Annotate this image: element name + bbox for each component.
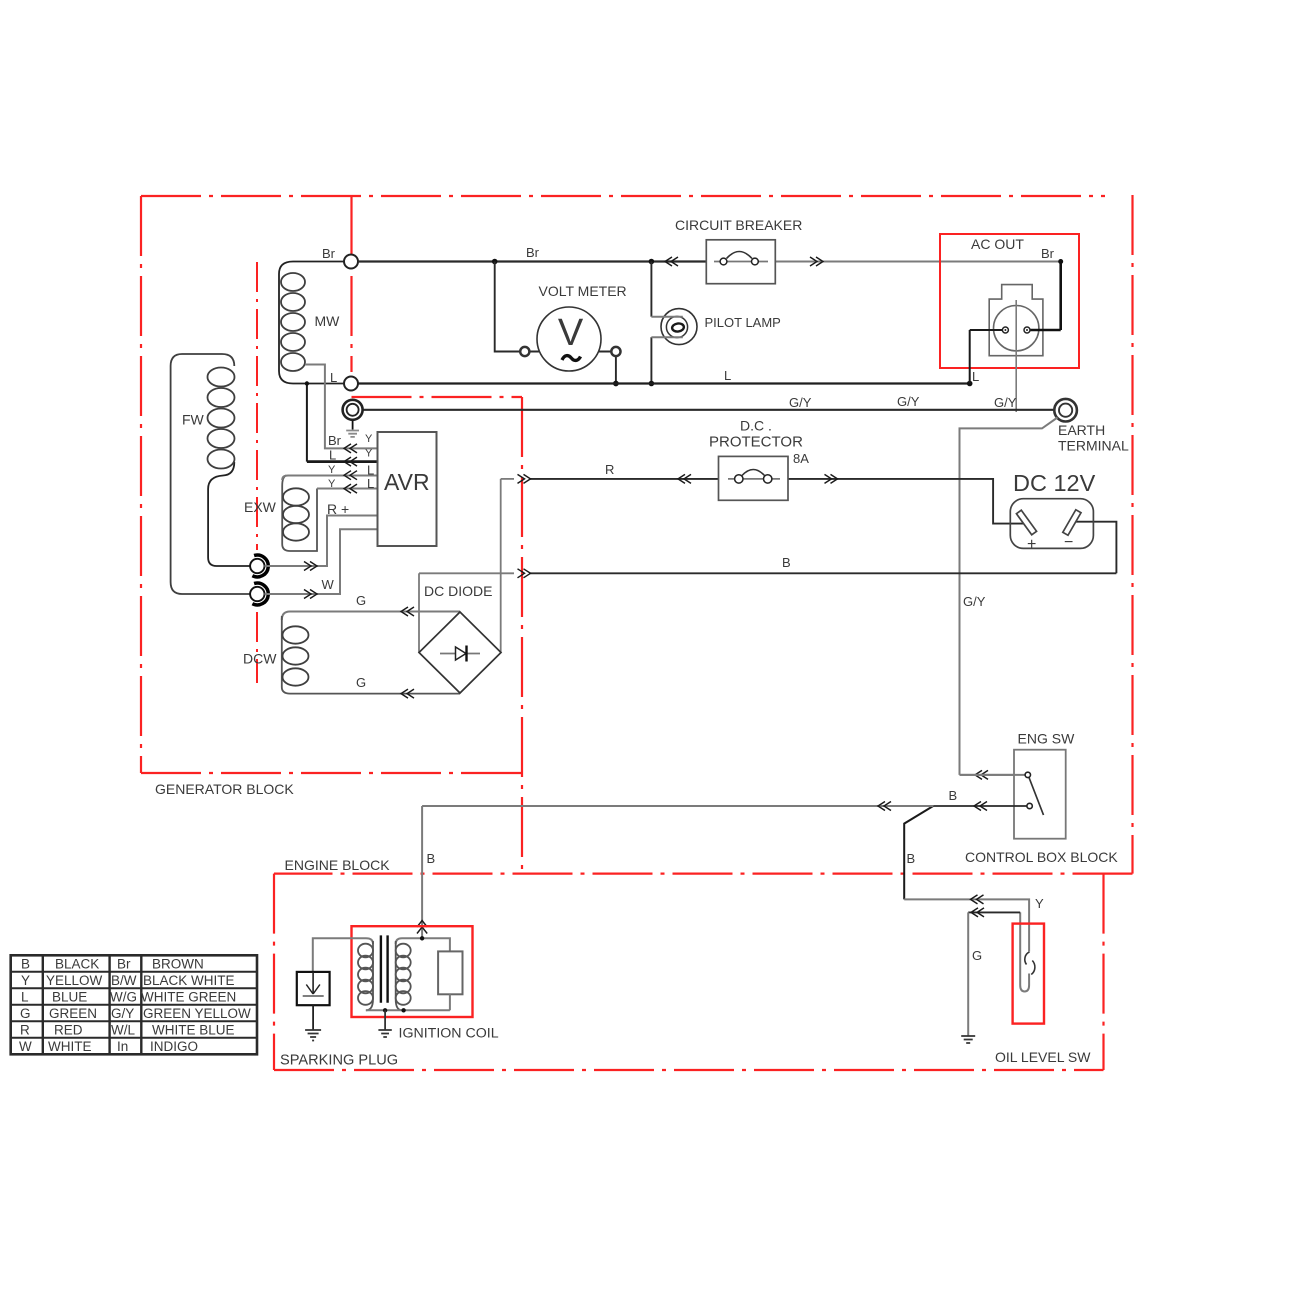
svg-text:SPARKING PLUG: SPARKING PLUG bbox=[280, 1053, 398, 1069]
svg-text:YELLOW: YELLOW bbox=[46, 973, 103, 988]
svg-text:Y: Y bbox=[21, 973, 30, 988]
svg-text:Br: Br bbox=[526, 245, 540, 260]
svg-text:DCW: DCW bbox=[243, 651, 277, 667]
svg-text:AC OUT: AC OUT bbox=[971, 236, 1024, 252]
svg-text:Y: Y bbox=[365, 433, 373, 445]
svg-text:MW: MW bbox=[315, 313, 341, 329]
svg-text:B: B bbox=[21, 957, 30, 972]
svg-text:Y: Y bbox=[1035, 896, 1044, 911]
svg-text:L: L bbox=[724, 368, 731, 383]
svg-text:G/Y: G/Y bbox=[963, 594, 986, 609]
svg-text:Y: Y bbox=[365, 448, 373, 460]
svg-text:G: G bbox=[972, 948, 982, 963]
svg-text:In: In bbox=[117, 1039, 128, 1054]
svg-text:Br: Br bbox=[328, 433, 342, 448]
svg-text:8A: 8A bbox=[793, 451, 809, 466]
svg-text:INDIGO: INDIGO bbox=[150, 1039, 198, 1054]
svg-text:B: B bbox=[949, 788, 958, 803]
svg-text:R: R bbox=[605, 462, 614, 477]
svg-text:GREEN: GREEN bbox=[49, 1006, 97, 1021]
svg-text:WHITE: WHITE bbox=[48, 1039, 92, 1054]
svg-text:Br: Br bbox=[322, 246, 336, 261]
svg-text:IGNITION COIL: IGNITION COIL bbox=[399, 1026, 499, 1042]
svg-text:B: B bbox=[907, 851, 916, 866]
svg-text:V: V bbox=[558, 312, 584, 354]
svg-text:DC DIODE: DC DIODE bbox=[424, 583, 492, 599]
svg-text:AVR: AVR bbox=[384, 469, 430, 495]
svg-text:BLACK: BLACK bbox=[55, 957, 99, 972]
svg-text:ENG SW: ENG SW bbox=[1018, 731, 1076, 747]
svg-text:B/W: B/W bbox=[111, 973, 137, 988]
svg-text:L: L bbox=[972, 369, 979, 384]
svg-text:G: G bbox=[356, 593, 366, 608]
svg-text:G/Y: G/Y bbox=[789, 395, 812, 410]
svg-text:EXW: EXW bbox=[244, 499, 277, 515]
svg-text:GREEN YELLOW: GREEN YELLOW bbox=[143, 1006, 251, 1021]
svg-text:WHITE GREEN: WHITE GREEN bbox=[141, 990, 236, 1005]
svg-text:GENERATOR BLOCK: GENERATOR BLOCK bbox=[155, 781, 294, 797]
svg-text:FW: FW bbox=[182, 412, 205, 428]
svg-text:G/Y: G/Y bbox=[111, 1006, 134, 1021]
svg-text:OIL LEVEL SW: OIL LEVEL SW bbox=[995, 1049, 1091, 1065]
svg-text:EARTH: EARTH bbox=[1058, 422, 1105, 438]
svg-text:+: + bbox=[1027, 536, 1036, 553]
svg-text:−: − bbox=[1064, 534, 1073, 551]
svg-text:Br: Br bbox=[1041, 246, 1055, 261]
svg-text:L: L bbox=[330, 370, 337, 385]
svg-text:RED: RED bbox=[54, 1023, 83, 1038]
svg-text:R: R bbox=[20, 1023, 30, 1038]
svg-text:L: L bbox=[329, 448, 336, 463]
svg-text:CIRCUIT BREAKER: CIRCUIT BREAKER bbox=[675, 217, 802, 233]
svg-text:DC 12V: DC 12V bbox=[1013, 470, 1096, 496]
svg-text:WHITE BLUE: WHITE BLUE bbox=[152, 1023, 235, 1038]
svg-text:G/Y: G/Y bbox=[897, 394, 920, 409]
svg-text:CONTROL BOX BLOCK: CONTROL BOX BLOCK bbox=[965, 849, 1118, 865]
svg-text:W: W bbox=[19, 1039, 32, 1054]
svg-text:ENGINE BLOCK: ENGINE BLOCK bbox=[285, 857, 391, 873]
svg-text:Y: Y bbox=[328, 464, 336, 476]
svg-text:Br: Br bbox=[117, 957, 131, 972]
svg-text:TERMINAL: TERMINAL bbox=[1058, 438, 1129, 454]
svg-text:BLUE: BLUE bbox=[52, 990, 87, 1005]
svg-text:BLACK WHITE: BLACK WHITE bbox=[143, 973, 235, 988]
svg-text:R +: R + bbox=[327, 501, 349, 517]
svg-text:G/Y: G/Y bbox=[994, 395, 1017, 410]
svg-text:D.C .: D.C . bbox=[740, 418, 772, 434]
svg-text:PILOT LAMP: PILOT LAMP bbox=[705, 315, 781, 330]
svg-text:B: B bbox=[782, 555, 791, 570]
svg-text:L: L bbox=[367, 476, 374, 491]
svg-text:G: G bbox=[20, 1006, 31, 1021]
svg-text:W: W bbox=[322, 577, 335, 592]
svg-text:Y: Y bbox=[328, 478, 336, 490]
svg-text:VOLT METER: VOLT METER bbox=[539, 283, 627, 299]
svg-text:B: B bbox=[427, 851, 436, 866]
svg-text:L: L bbox=[21, 990, 29, 1005]
svg-text:W/L: W/L bbox=[111, 1023, 135, 1038]
svg-text:G: G bbox=[356, 675, 366, 690]
svg-text:W/G: W/G bbox=[110, 990, 137, 1005]
svg-text:PROTECTOR: PROTECTOR bbox=[709, 434, 803, 451]
svg-text:BROWN: BROWN bbox=[152, 957, 204, 972]
